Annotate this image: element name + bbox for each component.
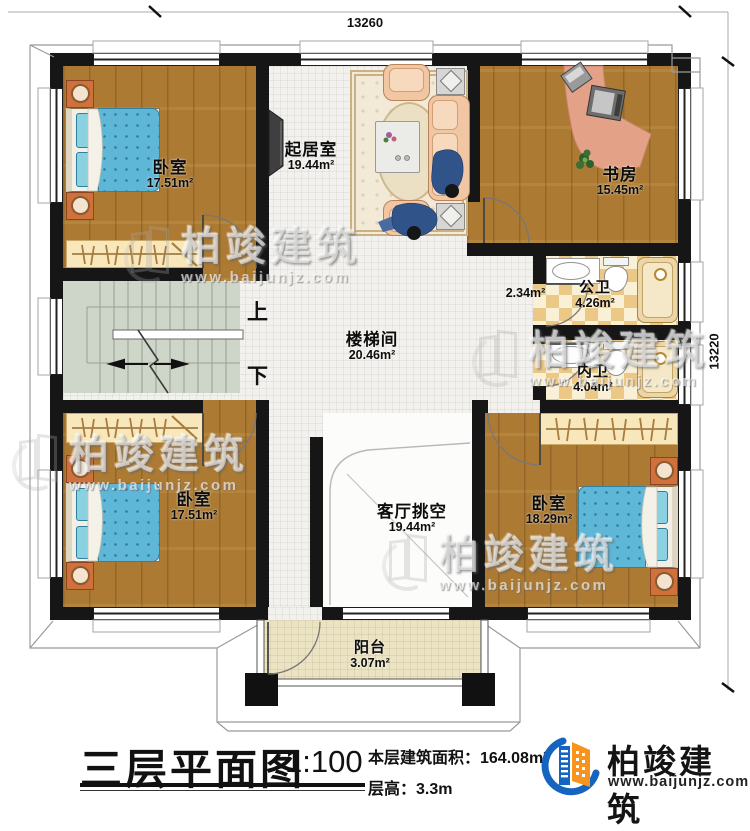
window-bedroom-br-right xyxy=(678,470,691,578)
window-bedroom-tl-top xyxy=(93,53,220,66)
nightstand xyxy=(66,455,94,483)
coffee-table xyxy=(375,121,420,173)
pillow xyxy=(76,152,92,187)
side-table xyxy=(436,68,465,95)
label-private-bath: 内卫 4.04m² xyxy=(551,364,635,394)
window-study-top xyxy=(521,53,648,66)
window-study-right xyxy=(678,88,691,200)
window-bedroom-br-bottom xyxy=(527,607,650,620)
wall-bed3-right xyxy=(256,400,269,607)
nightstand xyxy=(66,80,94,108)
drawing-scale: 1:100 xyxy=(285,744,363,780)
wall-bed3-top-a xyxy=(63,400,203,413)
window-bedroom-bl-bottom xyxy=(93,607,220,620)
label-corridor-area: 2.34m² xyxy=(478,287,573,301)
floor-plan: 卧室 17.51m² 起居室 19.44m² 书房 15.45m² 公卫 4.2… xyxy=(0,0,750,807)
wall-bed4-top-a xyxy=(472,400,488,413)
nightstand xyxy=(650,568,678,596)
label-void: 客厅挑空 19.44m² xyxy=(357,503,467,535)
wardrobe xyxy=(540,413,678,445)
wall-study-bottom xyxy=(467,243,691,256)
nightstand xyxy=(66,192,94,220)
wall-void-left xyxy=(310,437,323,607)
wardrobe xyxy=(66,240,203,268)
label-bedroom-bottomright: 卧室 18.29m² xyxy=(499,495,599,527)
wall-between-baths xyxy=(533,325,691,340)
window-void-balcony xyxy=(342,607,450,620)
bathtub xyxy=(637,257,678,323)
title-underline-thin xyxy=(80,790,365,791)
wall-bed1-living xyxy=(256,66,269,281)
armchair-cushion xyxy=(389,68,424,92)
wall-bath-left-a xyxy=(533,256,546,284)
wall-bed1-bottom-b xyxy=(256,268,269,281)
label-study: 书房 15.45m² xyxy=(570,166,670,198)
wall-bath-left-c xyxy=(533,386,546,400)
dimension-right: 13220 xyxy=(707,312,722,392)
pillow xyxy=(76,488,92,521)
floor-height-text: 层高：3.3m xyxy=(368,775,452,799)
bathtub-faucet xyxy=(654,352,667,365)
window-privatebath-right xyxy=(678,345,691,405)
window-bedroom-bl-left xyxy=(50,470,63,578)
wall-bed1-bottom-a xyxy=(63,268,203,281)
stairs-floor xyxy=(63,281,240,393)
label-bedroom-bottomleft: 卧室 17.51m² xyxy=(144,491,244,523)
bathtub-faucet xyxy=(654,268,667,281)
nightstand xyxy=(650,457,678,485)
toilet-tank xyxy=(603,257,629,266)
label-balcony: 阳台 3.07m² xyxy=(320,640,420,670)
sofa-cushion xyxy=(432,166,458,196)
wardrobe xyxy=(66,413,203,443)
wall-bed4-top-b xyxy=(540,400,691,413)
window-bedroom-tl-left xyxy=(50,88,63,203)
sink-basin xyxy=(552,346,590,364)
window-publicbath-right xyxy=(678,262,691,322)
bathtub xyxy=(637,341,678,398)
brand-url: www.baijunjz.com xyxy=(608,774,749,790)
nightstand xyxy=(66,562,94,590)
wall-void-bed4 xyxy=(472,413,485,607)
sofa-cushion xyxy=(432,100,458,130)
drawing-title: 三层平面图 xyxy=(80,736,305,797)
pillow xyxy=(76,526,92,559)
title-underline xyxy=(80,783,365,787)
pillow xyxy=(76,113,92,148)
balcony-door-opening xyxy=(268,607,322,620)
study-floor xyxy=(467,66,691,243)
pillow xyxy=(652,528,668,561)
floor-area-text: 本层建筑面积：164.08m² xyxy=(368,744,549,768)
stairs-up-label: 上 xyxy=(247,296,268,326)
label-stairwell: 楼梯间 20.46m² xyxy=(322,331,422,363)
pillow xyxy=(652,491,668,524)
label-bedroom-topleft: 卧室 17.51m² xyxy=(120,159,220,191)
dimension-top: 13260 xyxy=(300,15,430,30)
armchair-cushion xyxy=(389,208,424,232)
toilet-tank xyxy=(603,341,629,350)
stairs-down-label: 下 xyxy=(247,360,268,390)
label-living: 起居室 19.44m² xyxy=(261,141,361,173)
window-stairs-left xyxy=(50,298,63,375)
sink-basin xyxy=(552,262,590,280)
floorplan-page: { "dimensions": { "top": "13260", "right… xyxy=(0,0,750,807)
sofa-cushion xyxy=(432,133,458,163)
side-table xyxy=(436,203,465,230)
